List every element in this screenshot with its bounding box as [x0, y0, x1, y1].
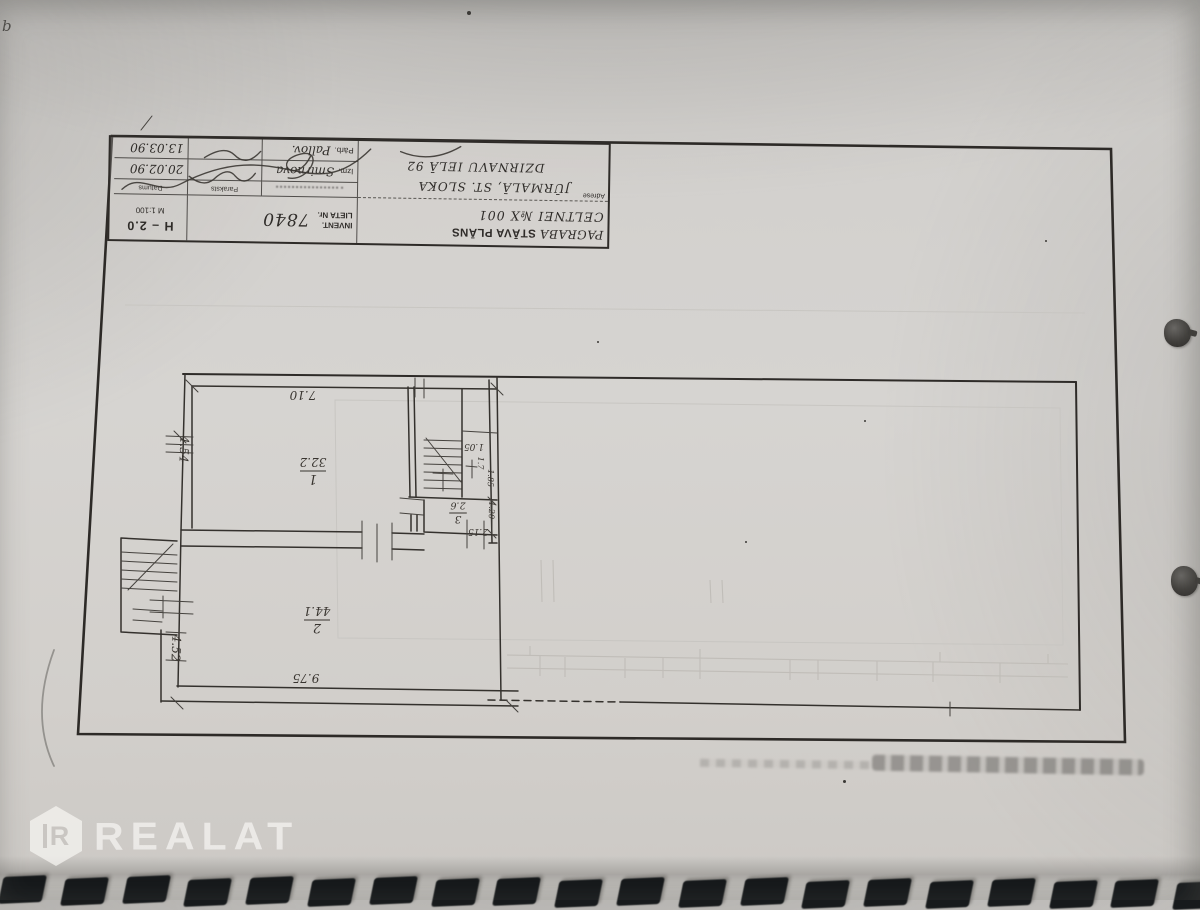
- logo-monogram: R: [50, 823, 70, 850]
- address-cell: Adrese JŪRMALĀ, ST. SLOKA DZIRNAVU IELĀ …: [358, 141, 609, 202]
- dim-room2-depth: 4.52: [169, 634, 184, 662]
- inventory-label-line1: INVENT.: [317, 220, 352, 231]
- binding-hole: [431, 878, 480, 907]
- paper-speck: [864, 420, 866, 422]
- row-surveyor: Izm. Smirnova: [262, 160, 358, 183]
- room-number: 1: [309, 471, 317, 486]
- binding-hole: [987, 878, 1036, 907]
- binding-hole: [1049, 880, 1098, 909]
- dim-room3-depth: 2.15: [468, 526, 489, 536]
- binding-hole: [183, 878, 232, 907]
- checker-signature-cell: [188, 138, 262, 160]
- binding-hole: [801, 880, 850, 909]
- dimension-labels: 7.10 9.75 4.54 4.52 1.05 1.7 1.85 1.20 2…: [169, 388, 497, 685]
- dim-room1-width: 7.10: [289, 388, 316, 402]
- address-line1: JŪRMALĀ, ST. SLOKA: [362, 178, 570, 195]
- watermark-brand-text: REALAT: [94, 814, 299, 859]
- staircase-external: [121, 538, 193, 635]
- building-walls: [161, 374, 1080, 716]
- title-cell: PAGRABA STĀVA PLĀNS CELTNEI №X 001: [357, 198, 608, 247]
- title-block: PAGRABA STĀVA PLĀNS CELTNEI №X 001 INVEN…: [107, 135, 611, 249]
- binding-hole: [369, 876, 418, 905]
- header-signature: Paraksts: [188, 180, 262, 196]
- inventory-label: INVENT. LIETA Nr.: [317, 210, 352, 231]
- title-handwritten: PAGRABA: [539, 227, 603, 242]
- binding-hole: [307, 878, 356, 907]
- illegible-print: [276, 182, 343, 189]
- address-label: Adrese: [583, 192, 605, 199]
- room-label-3: 3 2.6: [449, 500, 467, 526]
- logo-bar: [43, 824, 47, 848]
- binding-hole: [616, 877, 665, 906]
- scanned-floor-plan-photo: { "photo": { "corner_mark": "b" }, "wate…: [0, 0, 1200, 900]
- inventory-number: 7840: [262, 209, 310, 230]
- binding-hole: [60, 877, 109, 906]
- room-label-1: 1 32.2: [300, 455, 327, 486]
- pencil-curve: [42, 650, 54, 766]
- checker-date: 13.03.90: [115, 137, 189, 159]
- paper-speck: [467, 11, 471, 15]
- binding-hole: [863, 878, 912, 907]
- dim-stair-depth: 1.85: [486, 469, 496, 487]
- room-area: 2.6: [450, 500, 466, 511]
- paper-speck: [1045, 240, 1047, 242]
- bleed-through-lines: [125, 305, 1085, 683]
- drawing-title: PAGRABA STĀVA PLĀNS: [361, 224, 603, 242]
- inventory-label-line2: LIETA Nr.: [317, 210, 352, 221]
- surveyor-name: Smirnova: [276, 164, 334, 179]
- paper-speck: [745, 541, 747, 543]
- realat-watermark: R REALAT: [30, 806, 299, 866]
- pencil-tick: [141, 116, 152, 130]
- scale-mark: M 1:100: [118, 205, 183, 215]
- dim-stair-width: 1.7: [476, 457, 485, 471]
- room-number: 2: [313, 620, 322, 635]
- dim-room1-depth: 4.54: [177, 435, 192, 463]
- binding-hole: [1110, 879, 1159, 908]
- dim-room3-width: 1.20: [487, 501, 497, 519]
- height-mark: H – 2.0: [117, 218, 182, 233]
- role-label: Pārb.: [334, 146, 353, 155]
- header-role: [262, 181, 358, 198]
- surveyor-signature-cell: [188, 159, 262, 181]
- binding-hole: [554, 879, 603, 908]
- binding-hole: [1172, 881, 1200, 910]
- paper-speck: [597, 341, 599, 343]
- header-date: Datums: [114, 179, 188, 195]
- binder-rivet-top: [1164, 319, 1191, 347]
- surveyor-date: 20.02.90: [114, 158, 188, 180]
- dim-lobby: 1.05: [464, 441, 484, 451]
- row-checker: Pārb. Pallov.: [262, 139, 358, 162]
- address-line2: DZIRNAVU IELĀ 92: [362, 158, 544, 175]
- pencil-corner-mark: b: [2, 17, 12, 35]
- room-area: 32.2: [300, 455, 327, 469]
- height-scale-cell: H – 2.0 M 1:100: [113, 194, 188, 240]
- binding-hole: [678, 879, 727, 908]
- paper-speck: [843, 780, 846, 783]
- room-number: 3: [454, 513, 461, 525]
- inventory-cell: INVENT. LIETA Nr. 7840: [187, 195, 358, 243]
- dim-room2-width: 9.75: [293, 671, 320, 685]
- realat-logo-icon: R: [30, 806, 82, 866]
- room-area: 44.1: [304, 604, 332, 618]
- binding-hole: [492, 877, 541, 906]
- binding-hole: [925, 880, 974, 909]
- building-number: CELTNEI №X 001: [362, 206, 604, 225]
- room-label-2: 2 44.1: [304, 604, 332, 635]
- title-block-table: PAGRABA STĀVA PLĀNS CELTNEI №X 001 INVEN…: [107, 135, 611, 249]
- binding-hole: [740, 877, 789, 906]
- title-printed: STĀVA PLĀNS: [452, 225, 536, 238]
- role-label: Izm.: [338, 167, 353, 176]
- binder-rivet-bottom: [1171, 566, 1198, 596]
- checker-name: Pallov.: [292, 143, 331, 158]
- binding-hole: [245, 876, 294, 905]
